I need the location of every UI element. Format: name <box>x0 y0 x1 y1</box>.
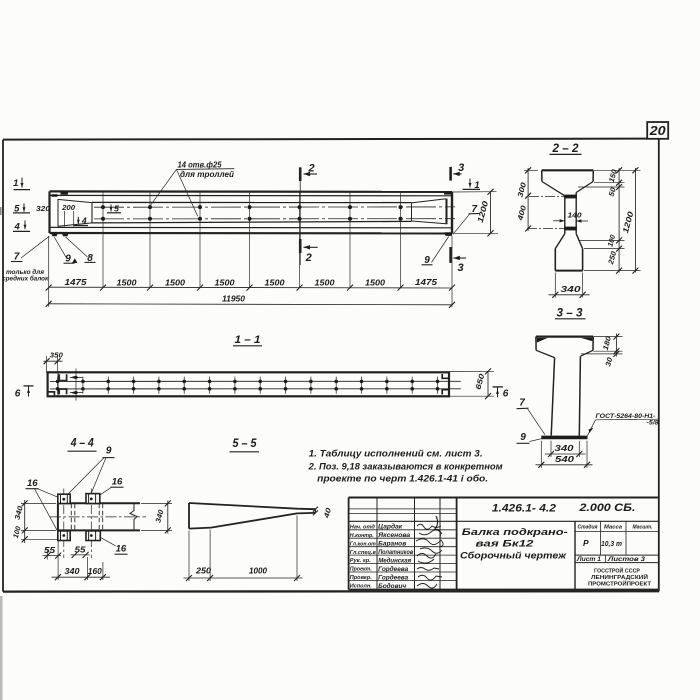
svg-text:11950: 11950 <box>222 294 245 304</box>
svg-text:Проект.: Проект. <box>350 567 372 573</box>
svg-text:Мединская: Мединская <box>378 557 411 564</box>
svg-text:Листов 3: Листов 3 <box>607 556 646 563</box>
svg-text:ЛЕНИНГРАДСКИЙ: ЛЕНИНГРАДСКИЙ <box>591 573 648 581</box>
svg-text:7: 7 <box>14 252 20 263</box>
svg-text:Баранов: Баранов <box>378 541 406 548</box>
svg-text:3 – 3: 3 – 3 <box>557 308 584 320</box>
svg-text:Нач. отд: Нач. отд <box>350 524 375 530</box>
svg-text:Яксенова: Яксенова <box>377 532 411 539</box>
svg-text:9: 9 <box>520 432 526 443</box>
svg-text:Гл.спец.в: Гл.спец.в <box>350 550 376 556</box>
svg-text:Провер.: Провер. <box>350 575 372 581</box>
svg-text:1000: 1000 <box>249 567 268 576</box>
svg-text:для троллей: для троллей <box>180 169 235 179</box>
svg-text:ГОССТРОЙ СССР: ГОССТРОЙ СССР <box>594 566 640 574</box>
svg-text:Р: Р <box>583 538 589 548</box>
svg-text:6: 6 <box>15 389 21 400</box>
svg-text:2: 2 <box>305 252 312 264</box>
svg-text:4 – 4: 4 – 4 <box>70 438 94 450</box>
svg-text:Рук. гр.: Рук. гр. <box>350 558 371 564</box>
svg-text:1500: 1500 <box>315 278 335 287</box>
svg-text:Н.контр.: Н.контр. <box>350 533 374 539</box>
svg-text:Полатников: Полатников <box>378 549 413 556</box>
svg-text:5: 5 <box>114 203 119 213</box>
svg-text:1500: 1500 <box>117 278 137 287</box>
svg-text:1500: 1500 <box>265 278 285 287</box>
svg-text:9: 9 <box>106 446 112 457</box>
svg-text:2. Поз. 9,18 заказываются в ко: 2. Поз. 9,18 заказываются в конкретном <box>308 462 503 472</box>
svg-text:340: 340 <box>561 285 582 294</box>
svg-text:-5/8: -5/8 <box>647 420 659 427</box>
svg-text:Масса: Масса <box>604 525 622 531</box>
svg-text:2: 2 <box>307 163 314 175</box>
svg-text:средних балок: средних балок <box>2 274 49 282</box>
svg-text:1500: 1500 <box>365 278 385 287</box>
svg-text:Гл.кон.от: Гл.кон.от <box>350 541 376 547</box>
svg-text:Гордеева: Гордеева <box>378 574 409 581</box>
svg-text:Лист 1: Лист 1 <box>576 556 602 563</box>
svg-text:16: 16 <box>112 477 123 488</box>
svg-text:Гордеева: Гордеева <box>378 566 409 573</box>
svg-text:1475: 1475 <box>65 278 88 287</box>
svg-text:Балка подкрано-: Балка подкрано- <box>462 527 568 538</box>
svg-text:10,3 т: 10,3 т <box>601 539 622 548</box>
svg-text:540: 540 <box>555 455 575 464</box>
svg-text:16: 16 <box>116 543 127 554</box>
svg-text:1.426.1- 4.2: 1.426.1- 4.2 <box>492 502 556 514</box>
svg-text:3: 3 <box>458 162 464 174</box>
svg-text:1. Таблицу исполнений см. лис: 1. Таблицу исполнений см. лист 3. <box>309 448 483 458</box>
svg-text:340: 340 <box>65 567 81 576</box>
svg-text:Цардак: Цардак <box>378 524 403 531</box>
svg-text:вая Бк12: вая Бк12 <box>476 539 535 550</box>
svg-text:350: 350 <box>50 351 63 360</box>
svg-text:320: 320 <box>36 204 51 213</box>
svg-text:1: 1 <box>13 178 18 189</box>
svg-text:Бодович: Бодович <box>378 583 406 590</box>
svg-text:160: 160 <box>88 567 103 576</box>
svg-text:ПРОМСТРОЙПРОЕКТ: ПРОМСТРОЙПРОЕКТ <box>588 580 652 588</box>
svg-text:Сборочный чертеж: Сборочный чертеж <box>460 551 567 562</box>
svg-text:20: 20 <box>649 124 666 138</box>
svg-text:Масшт.: Масшт. <box>633 525 653 531</box>
svg-text:16: 16 <box>27 478 38 489</box>
svg-text:4: 4 <box>81 215 87 225</box>
svg-text:проекте по черт 1.426.1-41 i о: проекте по черт 1.426.1-41 i обо. <box>317 473 488 483</box>
svg-text:6: 6 <box>503 388 509 399</box>
svg-text:1500: 1500 <box>165 278 185 287</box>
svg-text:Стадия: Стадия <box>578 525 599 531</box>
svg-text:Исполн.: Исполн. <box>350 584 372 590</box>
svg-text:2.000 СБ.: 2.000 СБ. <box>578 502 635 514</box>
svg-text:140: 140 <box>568 211 583 220</box>
svg-text:200: 200 <box>61 203 76 212</box>
svg-text:2 – 2: 2 – 2 <box>551 143 579 155</box>
svg-text:7: 7 <box>519 398 525 409</box>
svg-text:14 отв.ф25: 14 отв.ф25 <box>178 159 222 169</box>
svg-text:3: 3 <box>457 262 463 274</box>
svg-text:1475: 1475 <box>415 278 438 287</box>
svg-text:5 – 5: 5 – 5 <box>233 438 258 450</box>
svg-text:1500: 1500 <box>215 278 235 287</box>
svg-text:250: 250 <box>195 567 212 576</box>
svg-text:1 – 1: 1 – 1 <box>235 334 261 346</box>
svg-text:340: 340 <box>555 444 575 453</box>
